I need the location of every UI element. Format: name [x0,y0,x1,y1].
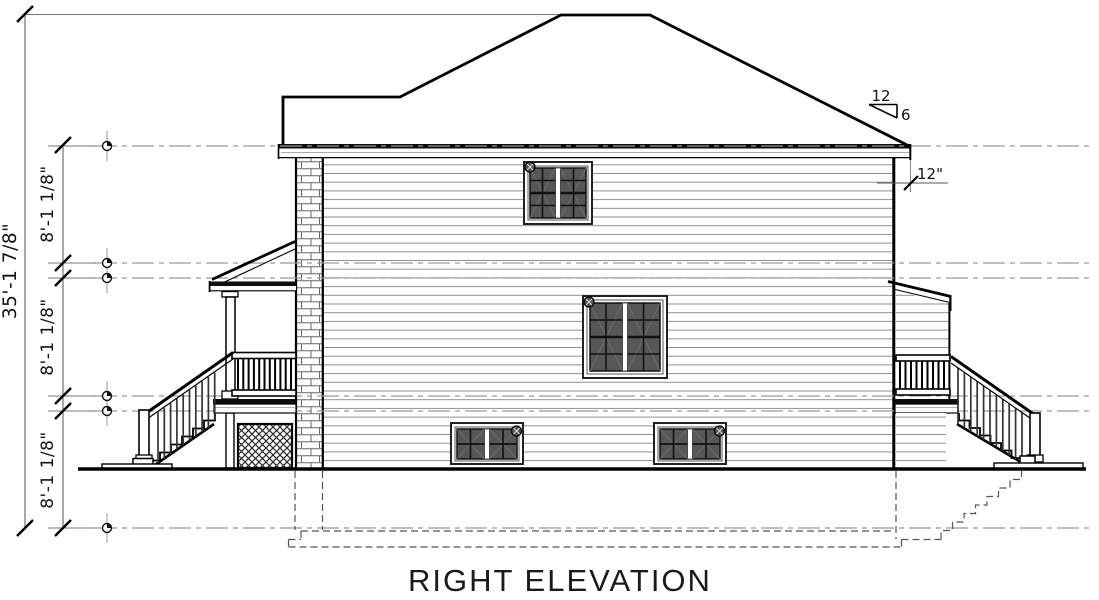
overall-height-dim: 35'-1 7/8" [0,223,21,319]
porch-column [222,292,238,469]
left-dimension-stack: 35'-1 7/8" 8'-1 1/8" 8'-1 1/8" 8'-1 1/8" [0,6,71,536]
right-porch [888,282,959,469]
window-keynote-marker [584,297,594,307]
roof-pitch-symbol: 12 6 [869,87,911,124]
deck-lattice-skirt [238,424,292,468]
stair-stringer [957,424,1029,467]
level-marker [103,513,112,543]
level-marker [103,381,112,426]
porch-railing [232,353,296,397]
roof-outline [283,15,911,147]
window-basement-left [451,423,523,464]
porch-deck [895,399,959,413]
window-upper [524,162,592,224]
floor-height-dim-lower: 8'-1 1/8" [38,431,58,509]
stair-newel-post [139,410,149,460]
foundation-dashed [289,471,1022,547]
elevation-drawing: 35'-1 7/8" 8'-1 1/8" 8'-1 1/8" 8'-1 1/8"… [0,0,1099,600]
porch-base-siding [896,413,946,468]
right-stairs [951,357,1083,469]
pitch-rise-label: 6 [901,106,911,124]
porch-deck [213,399,296,413]
window-keynote-marker [525,162,535,172]
window-keynote-marker [512,426,522,436]
level-marker [103,131,112,161]
floor-height-dim-upper: 8'-1 1/8" [38,165,58,243]
window-basement-right [654,423,726,464]
porch-railing [896,355,950,395]
window-middle [583,296,667,378]
eave-overhang-label: 12" [917,165,943,183]
drawing-title: RIGHT ELEVATION [408,563,712,598]
floor-height-dim-middle: 8'-1 1/8" [38,298,58,376]
level-marker [103,248,112,293]
stepped-footing [941,471,1022,540]
window-keynote-marker [715,426,725,436]
level-markers [103,131,112,543]
pitch-run-label: 12 [871,87,890,105]
brick-chimney [296,158,323,469]
left-porch [209,242,296,469]
elevation-sheet: 35'-1 7/8" 8'-1 1/8" 8'-1 1/8" 8'-1 1/8"… [0,0,1099,600]
